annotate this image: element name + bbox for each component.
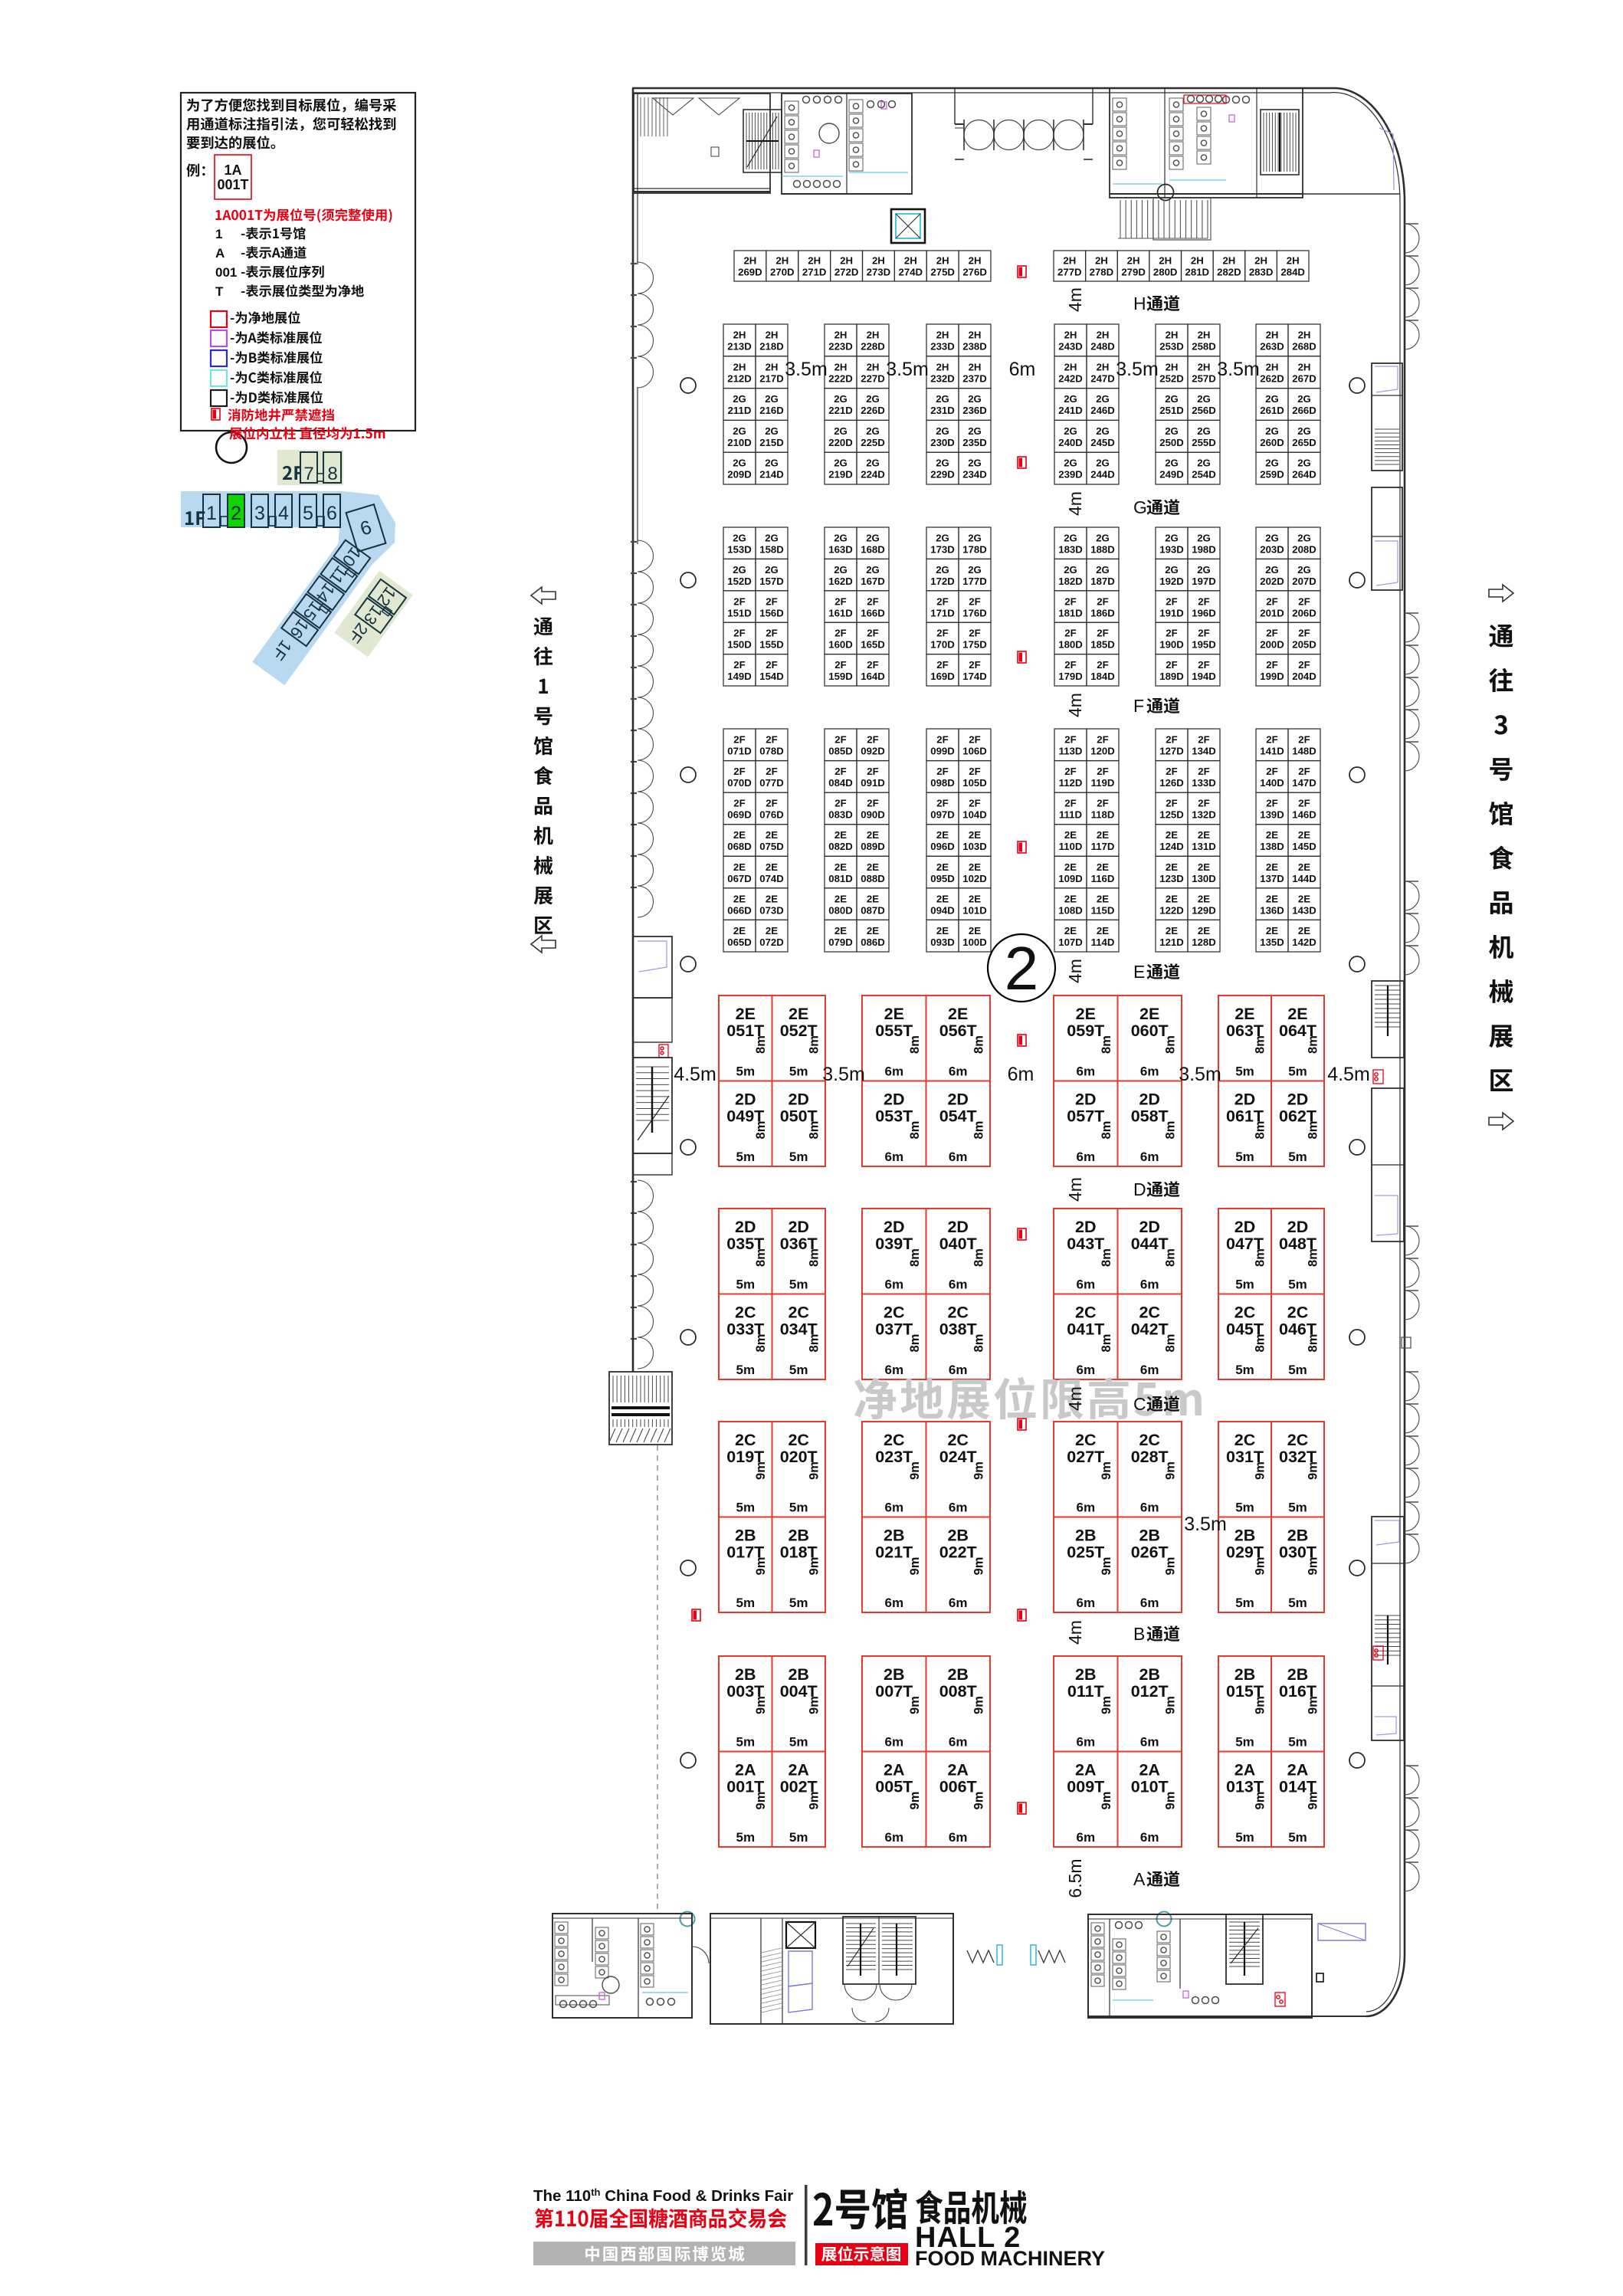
svg-text:2H: 2H	[969, 330, 982, 341]
svg-text:2B: 2B	[1234, 1527, 1255, 1545]
svg-text:6.5m: 6.5m	[1065, 1858, 1085, 1897]
svg-text:140D: 140D	[1260, 777, 1284, 789]
svg-text:2H: 2H	[840, 255, 853, 267]
svg-text:5m: 5m	[1235, 1830, 1254, 1845]
svg-text:9m: 9m	[908, 1557, 922, 1576]
svg-text:245D: 245D	[1090, 437, 1115, 448]
svg-text:2G: 2G	[1064, 458, 1077, 469]
svg-text:5m: 5m	[1235, 1501, 1254, 1515]
svg-text:102D: 102D	[962, 873, 987, 884]
svg-text:2F: 2F	[1298, 798, 1310, 809]
svg-text:2G: 2G	[1297, 425, 1311, 437]
svg-text:2G: 2G	[936, 425, 949, 437]
svg-text:054T: 054T	[939, 1107, 977, 1126]
svg-text:2F: 2F	[834, 628, 846, 639]
svg-text:273D: 273D	[867, 267, 891, 278]
svg-text:2G: 2G	[733, 393, 746, 405]
svg-text:2G: 2G	[733, 564, 746, 576]
svg-text:2A: 2A	[1139, 1761, 1159, 1779]
svg-text:2E: 2E	[834, 861, 847, 873]
svg-text:043T: 043T	[1067, 1235, 1104, 1253]
svg-text:5m: 5m	[736, 1363, 756, 1377]
svg-text:9m: 9m	[808, 1557, 821, 1576]
svg-text:2H: 2H	[1222, 255, 1235, 267]
svg-text:2G: 2G	[1197, 458, 1211, 469]
svg-text:2H: 2H	[936, 361, 949, 372]
svg-text:2H: 2H	[1287, 255, 1300, 267]
svg-text:274D: 274D	[899, 267, 923, 278]
svg-text:2F: 2F	[867, 595, 878, 607]
svg-text:2G: 2G	[1297, 533, 1311, 544]
svg-text:2D: 2D	[884, 1091, 904, 1109]
svg-text:117D: 117D	[1091, 841, 1115, 852]
svg-text:2E: 2E	[1064, 893, 1077, 904]
svg-text:2F: 2F	[867, 798, 878, 809]
svg-text:8m: 8m	[908, 1121, 922, 1140]
svg-text:5m: 5m	[736, 1501, 756, 1515]
svg-text:2H: 2H	[766, 361, 779, 372]
svg-text:6m: 6m	[1077, 1150, 1096, 1164]
svg-text:2H: 2H	[1298, 330, 1311, 341]
svg-text:2E: 2E	[1198, 861, 1210, 873]
svg-text:2H: 2H	[733, 330, 746, 341]
svg-text:2E: 2E	[1298, 925, 1310, 936]
svg-text:2F: 2F	[1064, 628, 1076, 639]
svg-text:086D: 086D	[861, 936, 885, 948]
svg-text:231D: 231D	[930, 405, 955, 416]
svg-text:2F: 2F	[867, 628, 878, 639]
svg-text:2C: 2C	[788, 1431, 808, 1449]
svg-text:127D: 127D	[1159, 746, 1184, 757]
svg-text:5m: 5m	[1235, 1064, 1254, 1079]
svg-text:153D: 153D	[727, 544, 752, 556]
svg-text:2G: 2G	[1165, 393, 1179, 405]
svg-text:2E: 2E	[834, 829, 847, 841]
svg-text:2F: 2F	[867, 734, 878, 746]
svg-text:9m: 9m	[1307, 1696, 1320, 1714]
svg-text:2E: 2E	[1198, 829, 1210, 841]
svg-text:090D: 090D	[861, 809, 885, 821]
svg-text:2G: 2G	[1297, 458, 1311, 469]
svg-text:2E: 2E	[1166, 925, 1178, 936]
svg-text:1: 1	[215, 227, 222, 241]
svg-text:9m: 9m	[972, 1461, 986, 1480]
svg-text:9m: 9m	[1164, 1461, 1178, 1480]
svg-text:2G: 2G	[936, 533, 949, 544]
svg-text:087D: 087D	[861, 904, 885, 916]
svg-text:9m: 9m	[972, 1792, 986, 1810]
svg-text:2E: 2E	[1097, 925, 1109, 936]
svg-text:237D: 237D	[962, 372, 987, 384]
svg-text:2E: 2E	[733, 861, 746, 873]
svg-text:2H: 2H	[1198, 330, 1211, 341]
svg-text:208D: 208D	[1292, 544, 1316, 556]
svg-text:2C: 2C	[947, 1304, 968, 1322]
svg-text:2G: 2G	[1197, 533, 1211, 544]
svg-text:012T: 012T	[1131, 1682, 1169, 1701]
svg-text:219D: 219D	[828, 469, 853, 481]
svg-text:2G: 2G	[834, 425, 848, 437]
svg-text:5m: 5m	[789, 1501, 808, 1515]
svg-text:5m: 5m	[1235, 1735, 1254, 1750]
svg-text:145D: 145D	[1292, 841, 1316, 852]
svg-text:6m: 6m	[1077, 1064, 1096, 1079]
svg-text:5m: 5m	[1288, 1150, 1307, 1164]
svg-text:4.5m: 4.5m	[1327, 1064, 1370, 1085]
svg-text:2C: 2C	[1139, 1431, 1159, 1449]
svg-text:2E: 2E	[1166, 893, 1178, 904]
svg-text:230D: 230D	[930, 437, 955, 448]
svg-text:9m: 9m	[1254, 1557, 1267, 1576]
svg-text:5m: 5m	[1288, 1064, 1307, 1079]
svg-text:2F: 2F	[1298, 734, 1310, 746]
svg-text:5m: 5m	[789, 1150, 808, 1164]
svg-text:093D: 093D	[930, 936, 955, 948]
svg-text:124D: 124D	[1159, 841, 1184, 852]
svg-text:B: B	[1133, 1624, 1145, 1644]
svg-text:2H: 2H	[969, 361, 982, 372]
svg-text:187D: 187D	[1090, 576, 1115, 587]
svg-text:194D: 194D	[1192, 671, 1216, 682]
svg-text:101D: 101D	[962, 904, 987, 916]
svg-text:2F: 2F	[766, 798, 777, 809]
svg-text:5m: 5m	[1288, 1596, 1307, 1610]
svg-text:2F: 2F	[733, 766, 745, 777]
svg-text:203D: 203D	[1260, 544, 1284, 556]
svg-text:4m: 4m	[1065, 491, 1085, 516]
svg-text:9m: 9m	[972, 1696, 986, 1714]
svg-text:252D: 252D	[1159, 372, 1184, 384]
svg-text:136D: 136D	[1260, 904, 1284, 916]
svg-text:8m: 8m	[1100, 1248, 1113, 1267]
svg-text:234D: 234D	[962, 469, 987, 481]
svg-text:5m: 5m	[789, 1596, 808, 1610]
svg-text:214D: 214D	[759, 469, 784, 481]
svg-text:212D: 212D	[727, 372, 752, 384]
svg-text:6m: 6m	[1077, 1596, 1096, 1610]
svg-text:2G: 2G	[733, 458, 746, 469]
svg-text:278D: 278D	[1090, 267, 1114, 278]
svg-text:2E: 2E	[1266, 893, 1278, 904]
svg-text:8m: 8m	[754, 1035, 768, 1054]
svg-text:142D: 142D	[1292, 936, 1316, 948]
svg-text:4.5m: 4.5m	[674, 1064, 716, 1085]
svg-text:8: 8	[327, 464, 337, 484]
svg-text:2F: 2F	[733, 659, 745, 671]
svg-text:4m: 4m	[1065, 287, 1085, 312]
svg-text:107D: 107D	[1058, 936, 1083, 948]
svg-text:2E: 2E	[936, 893, 949, 904]
svg-text:3.5m: 3.5m	[1217, 359, 1260, 380]
svg-text:232D: 232D	[930, 372, 955, 384]
svg-text:010T: 010T	[1131, 1778, 1169, 1796]
svg-text:258D: 258D	[1192, 341, 1216, 353]
svg-text:2G: 2G	[1165, 564, 1179, 576]
svg-text:2G: 2G	[1197, 393, 1211, 405]
svg-text:8m: 8m	[754, 1334, 768, 1353]
svg-text:2F: 2F	[1097, 628, 1108, 639]
svg-text:092D: 092D	[861, 746, 885, 757]
svg-text:116D: 116D	[1091, 873, 1115, 884]
svg-text:2D: 2D	[1234, 1218, 1255, 1236]
svg-text:221D: 221D	[828, 405, 853, 416]
svg-text:2F: 2F	[936, 798, 948, 809]
svg-text:148D: 148D	[1292, 746, 1316, 757]
svg-text:8m: 8m	[808, 1334, 821, 1353]
svg-text:6m: 6m	[885, 1363, 904, 1377]
svg-text:122D: 122D	[1159, 904, 1184, 916]
svg-text:246D: 246D	[1090, 405, 1115, 416]
svg-text:6m: 6m	[1008, 1064, 1034, 1085]
svg-text:2G: 2G	[936, 564, 949, 576]
svg-text:2F: 2F	[1064, 734, 1076, 746]
svg-text:6m: 6m	[1140, 1596, 1159, 1610]
svg-text:8m: 8m	[972, 1121, 986, 1140]
svg-text:2F: 2F	[1166, 798, 1177, 809]
svg-text:2G: 2G	[1265, 425, 1279, 437]
svg-text:G: G	[1133, 497, 1147, 517]
svg-text:185D: 185D	[1090, 639, 1115, 651]
svg-text:2B: 2B	[1287, 1665, 1308, 1684]
svg-text:164D: 164D	[861, 671, 885, 682]
svg-text:2F: 2F	[936, 628, 948, 639]
svg-text:2H: 2H	[1254, 255, 1267, 267]
svg-text:2D: 2D	[1139, 1091, 1159, 1109]
svg-text:2E: 2E	[1076, 1005, 1096, 1023]
svg-text:100D: 100D	[962, 936, 987, 948]
svg-text:242D: 242D	[1058, 372, 1083, 384]
svg-text:154D: 154D	[759, 671, 784, 682]
svg-text:2G: 2G	[1165, 425, 1179, 437]
svg-text:058T: 058T	[1131, 1107, 1169, 1126]
svg-text:2G: 2G	[1096, 564, 1110, 576]
svg-text:2G: 2G	[1265, 393, 1279, 405]
svg-text:9m: 9m	[1100, 1557, 1113, 1576]
svg-text:8m: 8m	[1254, 1121, 1267, 1140]
svg-text:2B: 2B	[884, 1527, 904, 1545]
svg-text:2G: 2G	[765, 458, 779, 469]
svg-text:060T: 060T	[1131, 1022, 1169, 1040]
svg-text:2H: 2H	[867, 330, 880, 341]
svg-text:9m: 9m	[808, 1792, 821, 1810]
svg-text:2G: 2G	[936, 393, 949, 405]
svg-text:6m: 6m	[1077, 1501, 1096, 1515]
svg-text:6m: 6m	[1140, 1278, 1159, 1292]
svg-text:207D: 207D	[1292, 576, 1316, 587]
svg-text:9m: 9m	[908, 1696, 922, 1714]
svg-text:2A: 2A	[735, 1761, 756, 1779]
svg-text:144D: 144D	[1292, 873, 1316, 884]
svg-text:176D: 176D	[962, 607, 987, 618]
svg-text:255D: 255D	[1192, 437, 1216, 448]
svg-text:236D: 236D	[962, 405, 987, 416]
svg-text:039T: 039T	[875, 1235, 913, 1253]
svg-text:2E: 2E	[1266, 829, 1278, 841]
svg-text:256D: 256D	[1192, 405, 1216, 416]
svg-text:9m: 9m	[808, 1696, 821, 1714]
svg-text:2G: 2G	[834, 564, 848, 576]
svg-text:277D: 277D	[1057, 267, 1082, 278]
svg-text:2D: 2D	[1287, 1218, 1308, 1236]
svg-text:266D: 266D	[1292, 405, 1316, 416]
svg-text:6m: 6m	[949, 1278, 968, 1292]
svg-text:149D: 149D	[727, 671, 752, 682]
svg-text:2E: 2E	[1064, 925, 1077, 936]
svg-text:2F: 2F	[936, 734, 948, 746]
svg-text:131D: 131D	[1192, 841, 1216, 852]
svg-text:9m: 9m	[908, 1792, 922, 1810]
svg-text:2F: 2F	[766, 734, 777, 746]
svg-text:2C: 2C	[788, 1304, 808, 1322]
svg-text:8m: 8m	[1164, 1035, 1178, 1054]
svg-text:2A: 2A	[947, 1761, 968, 1779]
svg-text:2H: 2H	[1298, 361, 1311, 372]
svg-text:2G: 2G	[1096, 458, 1110, 469]
svg-text:074D: 074D	[759, 873, 784, 884]
svg-text:2D: 2D	[947, 1091, 968, 1109]
svg-text:6m: 6m	[1140, 1064, 1159, 1079]
svg-text:2G: 2G	[1096, 533, 1110, 544]
svg-text:2G: 2G	[1197, 564, 1211, 576]
svg-text:8m: 8m	[1254, 1248, 1267, 1267]
svg-text:075D: 075D	[759, 841, 784, 852]
svg-text:2H: 2H	[766, 330, 779, 341]
svg-text:6m: 6m	[949, 1596, 968, 1610]
svg-text:078D: 078D	[759, 746, 784, 757]
svg-text:2E: 2E	[969, 829, 981, 841]
svg-text:2F: 2F	[1266, 659, 1277, 671]
svg-text:251D: 251D	[1159, 405, 1184, 416]
svg-text:2F: 2F	[766, 766, 777, 777]
svg-text:2F: 2F	[867, 766, 878, 777]
svg-text:2G: 2G	[834, 533, 848, 544]
svg-text:D: D	[1133, 1179, 1146, 1199]
svg-text:200D: 200D	[1260, 639, 1284, 651]
svg-text:210D: 210D	[727, 437, 752, 448]
svg-text:9m: 9m	[1307, 1557, 1320, 1576]
svg-text:2H: 2H	[1266, 330, 1279, 341]
svg-text:023T: 023T	[875, 1448, 913, 1466]
svg-text:2E: 2E	[766, 829, 778, 841]
svg-text:182D: 182D	[1058, 576, 1083, 587]
svg-text:135D: 135D	[1260, 936, 1284, 948]
svg-text:009T: 009T	[1067, 1778, 1104, 1796]
svg-text:073D: 073D	[759, 904, 784, 916]
svg-text:6m: 6m	[949, 1830, 968, 1845]
svg-text:2F: 2F	[1166, 628, 1177, 639]
svg-text:179D: 179D	[1058, 671, 1083, 682]
svg-text:2H: 2H	[867, 361, 880, 372]
svg-text:2E: 2E	[1198, 893, 1210, 904]
svg-text:175D: 175D	[962, 639, 987, 651]
svg-text:2E: 2E	[1064, 829, 1077, 841]
svg-text:226D: 226D	[861, 405, 885, 416]
svg-text:4m: 4m	[1065, 1620, 1085, 1645]
svg-text:2F: 2F	[867, 659, 878, 671]
svg-text:240D: 240D	[1058, 437, 1083, 448]
svg-text:2F: 2F	[1298, 595, 1310, 607]
svg-text:2E: 2E	[1234, 1005, 1254, 1023]
svg-text:2A: 2A	[1287, 1761, 1308, 1779]
svg-text:2H: 2H	[733, 361, 746, 372]
svg-text:167D: 167D	[861, 576, 885, 587]
svg-text:2G: 2G	[765, 425, 779, 437]
svg-text:276D: 276D	[962, 267, 987, 278]
svg-text:5m: 5m	[1235, 1278, 1254, 1292]
svg-text:272D: 272D	[834, 267, 859, 278]
svg-text:123D: 123D	[1159, 873, 1184, 884]
svg-text:037T: 037T	[875, 1320, 913, 1339]
svg-text:2H: 2H	[1198, 361, 1211, 372]
svg-text:119D: 119D	[1091, 777, 1115, 789]
svg-text:223D: 223D	[828, 341, 853, 353]
svg-text:9m: 9m	[1307, 1461, 1320, 1480]
svg-text:5m: 5m	[736, 1596, 756, 1610]
svg-text:173D: 173D	[930, 544, 955, 556]
svg-text:2C: 2C	[884, 1431, 904, 1449]
svg-text:2G: 2G	[866, 533, 880, 544]
svg-text:5m: 5m	[736, 1830, 756, 1845]
svg-text:2C: 2C	[1287, 1304, 1308, 1322]
svg-text:218D: 218D	[759, 341, 784, 353]
svg-text:088D: 088D	[861, 873, 885, 884]
svg-text:9m: 9m	[908, 1461, 922, 1480]
svg-text:H: H	[1133, 294, 1146, 313]
svg-text:4m: 4m	[1065, 959, 1085, 983]
svg-text:257D: 257D	[1192, 372, 1216, 384]
svg-text:2F: 2F	[1266, 734, 1277, 746]
svg-text:269D: 269D	[738, 267, 762, 278]
svg-text:2D: 2D	[1234, 1091, 1255, 1109]
svg-text:2F: 2F	[766, 595, 777, 607]
svg-text:2E: 2E	[789, 1005, 808, 1023]
svg-text:129D: 129D	[1192, 904, 1216, 916]
svg-text:2H: 2H	[808, 255, 821, 267]
svg-text:244D: 244D	[1090, 469, 1115, 481]
svg-text:099D: 099D	[930, 746, 955, 757]
svg-text:201D: 201D	[1260, 607, 1284, 618]
svg-text:2F: 2F	[1198, 734, 1209, 746]
svg-text:008T: 008T	[939, 1682, 977, 1701]
svg-text:5m: 5m	[736, 1064, 756, 1079]
svg-text:2E: 2E	[884, 1005, 904, 1023]
svg-text:079D: 079D	[828, 936, 853, 948]
svg-text:6: 6	[326, 503, 337, 524]
svg-text:233D: 233D	[930, 341, 955, 353]
svg-text:081D: 081D	[828, 873, 853, 884]
svg-text:163D: 163D	[828, 544, 853, 556]
svg-text:2E: 2E	[766, 893, 778, 904]
svg-text:8m: 8m	[1100, 1121, 1113, 1140]
svg-text:2B: 2B	[1234, 1665, 1255, 1684]
svg-text:8m: 8m	[754, 1248, 768, 1267]
svg-text:2: 2	[231, 503, 241, 524]
svg-text:2F: 2F	[1064, 595, 1076, 607]
svg-text:076D: 076D	[759, 809, 784, 821]
svg-text:177D: 177D	[962, 576, 987, 587]
svg-text:096D: 096D	[930, 841, 955, 852]
svg-text:9m: 9m	[1164, 1792, 1178, 1810]
svg-text:8m: 8m	[972, 1334, 986, 1353]
svg-text:2F: 2F	[834, 798, 846, 809]
svg-text:2G: 2G	[968, 425, 982, 437]
svg-text:2H: 2H	[834, 330, 848, 341]
svg-text:2B: 2B	[1287, 1527, 1308, 1545]
svg-text:072D: 072D	[759, 936, 784, 948]
svg-text:011T: 011T	[1067, 1682, 1104, 1701]
svg-text:2G: 2G	[1064, 533, 1077, 544]
svg-text:132D: 132D	[1192, 809, 1216, 821]
